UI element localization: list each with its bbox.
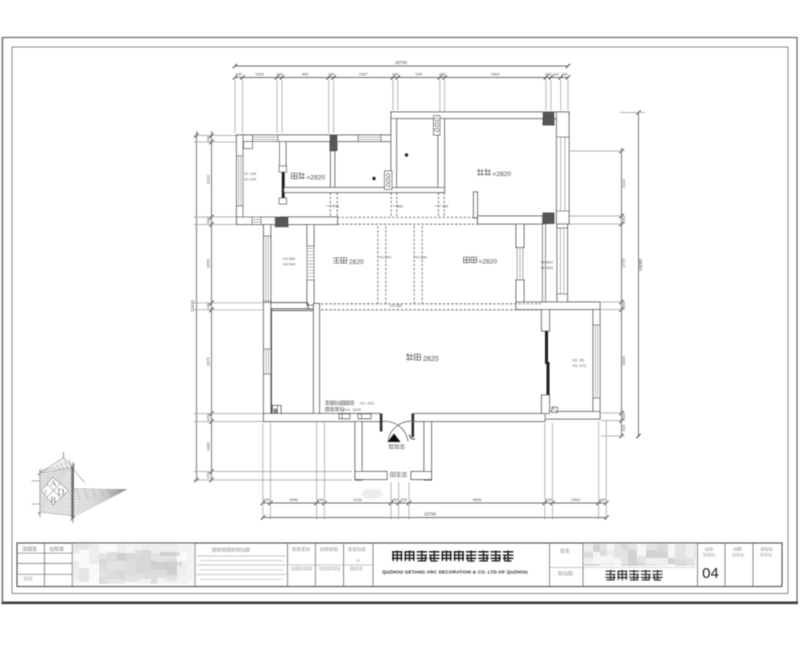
svg-text:4556: 4556 xyxy=(472,497,482,502)
svg-text:140: 140 xyxy=(205,302,210,309)
svg-text:160: 160 xyxy=(205,413,210,420)
svg-text:A: A xyxy=(50,478,57,488)
svg-text:H2:540: H2:540 xyxy=(283,263,295,267)
svg-text:42.428: 42.428 xyxy=(244,177,257,182)
svg-text:240: 240 xyxy=(317,497,324,502)
svg-text:240: 240 xyxy=(328,72,335,77)
svg-text:2075: 2075 xyxy=(205,356,210,366)
svg-text:c: c xyxy=(44,488,47,496)
svg-text:=2920: =2920 xyxy=(307,175,326,182)
svg-text:H1: 95: H1: 95 xyxy=(573,359,584,363)
svg-text:240: 240 xyxy=(205,217,210,224)
svg-text:102: 102 xyxy=(552,72,559,77)
svg-text:240: 240 xyxy=(621,302,626,309)
svg-text:QUZHOU GETANG ARC DECORATION &: QUZHOU GETANG ARC DECORATION & CO. LTD O… xyxy=(382,570,528,575)
svg-text:240: 240 xyxy=(545,497,552,502)
svg-text:16085: 16085 xyxy=(638,258,643,271)
svg-text:=2820: =2820 xyxy=(479,259,498,266)
svg-text:2113: 2113 xyxy=(621,178,626,187)
svg-text:170: 170 xyxy=(205,472,210,479)
svg-text:2307: 2307 xyxy=(359,72,369,77)
svg-text:13910: 13910 xyxy=(190,299,195,312)
svg-text:240: 240 xyxy=(276,72,283,77)
svg-text:H1:600: H1:600 xyxy=(541,261,553,265)
svg-text:240: 240 xyxy=(599,497,606,502)
svg-text:240: 240 xyxy=(621,216,626,223)
svg-text:929: 929 xyxy=(415,72,422,77)
svg-text:1542: 1542 xyxy=(255,72,265,77)
svg-text:240: 240 xyxy=(545,72,552,77)
svg-text:=2820: =2820 xyxy=(493,171,512,178)
svg-text:240: 240 xyxy=(561,72,568,77)
svg-text:400: 400 xyxy=(397,205,403,209)
svg-text:1565: 1565 xyxy=(205,258,210,268)
svg-text:16750: 16750 xyxy=(395,60,408,65)
svg-text:H1:440: H1:440 xyxy=(379,256,391,260)
svg-text:325: 325 xyxy=(400,497,407,502)
svg-text:1005: 1005 xyxy=(205,441,210,451)
svg-text:2820: 2820 xyxy=(423,356,439,363)
svg-text:310: 310 xyxy=(621,424,626,431)
svg-text:16750: 16750 xyxy=(424,512,437,517)
svg-text:240: 240 xyxy=(439,72,446,77)
svg-text:2833: 2833 xyxy=(621,356,626,366)
svg-text:04: 04 xyxy=(702,565,719,582)
svg-text:1775: 1775 xyxy=(621,258,626,268)
svg-text:H1:280: H1:280 xyxy=(390,304,402,308)
svg-text:240: 240 xyxy=(392,72,399,77)
svg-text:H1:460: H1:460 xyxy=(283,257,295,261)
svg-text:41.168: 41.168 xyxy=(244,171,257,176)
svg-text:1590: 1590 xyxy=(289,497,299,502)
svg-text:2402: 2402 xyxy=(491,72,501,77)
svg-text:295: 295 xyxy=(333,205,339,209)
svg-text:240: 240 xyxy=(263,497,270,502)
svg-text:240: 240 xyxy=(235,72,242,77)
svg-text:D: D xyxy=(57,487,64,498)
svg-text:1563: 1563 xyxy=(571,497,581,502)
svg-text:H1: 1630: H1: 1630 xyxy=(345,407,362,412)
svg-text:2102: 2102 xyxy=(353,497,363,502)
svg-text:H2:600: H2:600 xyxy=(541,266,553,270)
svg-text:902: 902 xyxy=(302,72,309,77)
svg-text:H1: 920: H1: 920 xyxy=(360,401,375,406)
svg-text:H1:240: H1:240 xyxy=(415,256,427,260)
svg-text:B: B xyxy=(50,495,56,505)
svg-text:1515: 1515 xyxy=(205,174,210,184)
svg-text:2820: 2820 xyxy=(349,259,364,266)
svg-text:240: 240 xyxy=(391,497,398,502)
svg-text:H2: 273: H2: 273 xyxy=(573,364,586,368)
svg-text:%: % xyxy=(356,558,360,563)
svg-text:240: 240 xyxy=(621,413,626,420)
svg-text:295: 295 xyxy=(442,205,448,209)
